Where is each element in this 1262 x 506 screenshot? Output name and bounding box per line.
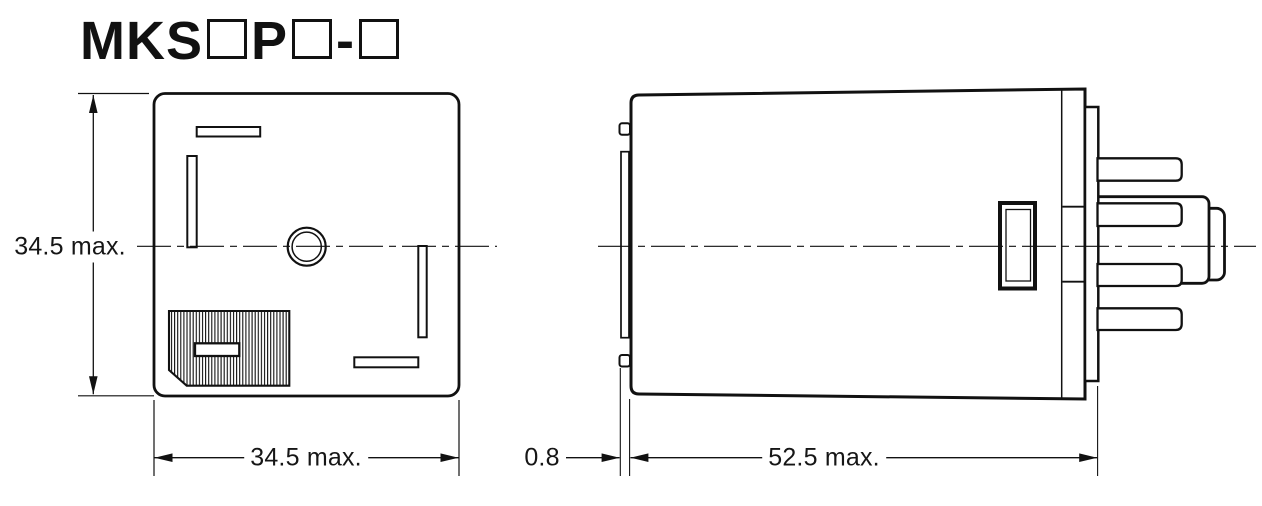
side-socket-plate [1085, 107, 1098, 381]
front-width-label: 34.5 max. [244, 443, 368, 474]
side-latch-lever [621, 152, 629, 338]
length-dim-arrow-left-icon [630, 453, 648, 462]
terminal-pin-4 [1098, 308, 1182, 330]
height-dim-arrow-up-icon [89, 95, 98, 113]
front-label-slot [195, 343, 239, 356]
width-dim-arrow-left-icon [155, 453, 173, 462]
side-latch-tab-top [620, 123, 631, 135]
front-right-slot [418, 246, 426, 337]
width-dim-arrow-right-icon [441, 453, 459, 462]
side-view-drawing [598, 89, 1256, 399]
offset-dim-arrow-right-icon [602, 453, 620, 462]
front-left-slot [187, 156, 196, 247]
dimension-drawing-page: MKSP- [0, 0, 1262, 506]
terminal-pin-2 [1098, 203, 1182, 226]
terminal-pin-1 [1098, 158, 1182, 180]
side-latch-tab-bottom [620, 355, 631, 367]
length-dim-arrow-right-icon [1079, 453, 1097, 462]
terminal-pin-3 [1098, 264, 1182, 286]
side-offset-dimension [566, 368, 630, 476]
front-height-label: 34.5 max. [8, 232, 132, 263]
side-offset-label: 0.8 [518, 443, 565, 474]
front-top-slot [197, 127, 261, 137]
front-bottom-slot [354, 357, 418, 367]
side-length-label: 52.5 max. [762, 443, 886, 474]
height-dim-arrow-down-icon [89, 376, 98, 394]
relay-dimension-diagram [0, 0, 1262, 506]
front-view-drawing [137, 94, 497, 397]
